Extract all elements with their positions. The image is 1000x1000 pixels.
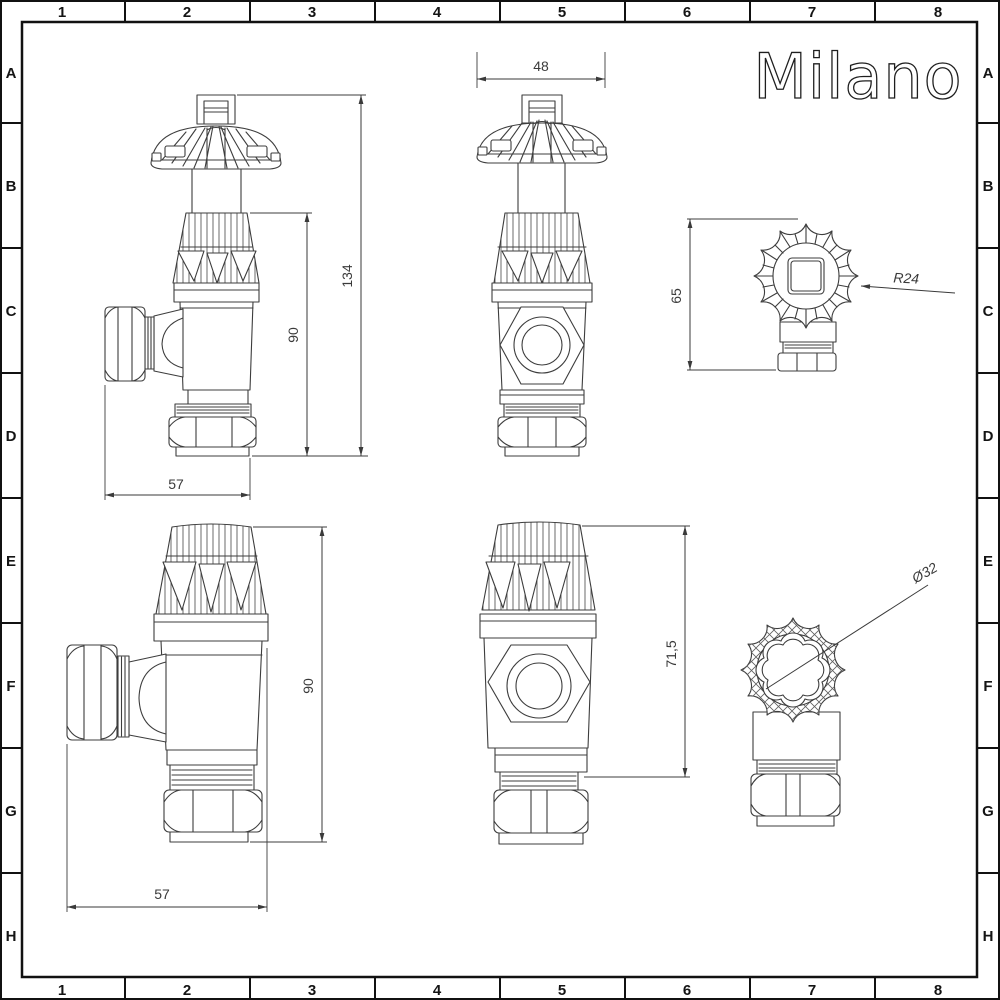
grid-col-label: 5 bbox=[558, 982, 566, 999]
bottom-column-dividers bbox=[125, 978, 875, 999]
lockshield-valve-front-view: 71,5 bbox=[480, 522, 690, 844]
left-row-labels: A B C D E F G H bbox=[5, 65, 17, 945]
grid-col-label: 5 bbox=[558, 4, 566, 21]
grid-row-label: F bbox=[983, 678, 992, 695]
grid-col-label: 8 bbox=[934, 4, 942, 21]
grid-row-label: E bbox=[983, 553, 993, 570]
drawing-sheet: 1 2 3 4 5 6 7 8 1 2 3 4 5 6 7 8 A B C D … bbox=[0, 0, 1000, 1000]
grid-col-label: 8 bbox=[934, 982, 942, 999]
angle-valve-top-linework bbox=[754, 224, 858, 371]
grid-col-label: 2 bbox=[183, 4, 191, 21]
angle-valve-front-linework bbox=[477, 95, 607, 456]
right-row-labels: A B C D E F G H bbox=[982, 65, 994, 945]
dim-body-height-label: 90 bbox=[285, 327, 301, 343]
grid-col-label: 7 bbox=[808, 982, 816, 999]
dim-handwheel-radius-label: R24 bbox=[893, 269, 920, 286]
grid-col-label: 3 bbox=[308, 982, 316, 999]
grid-row-label: D bbox=[983, 428, 994, 445]
left-row-dividers bbox=[1, 123, 22, 873]
milano-logo: Milano bbox=[753, 40, 962, 113]
lockshield-valve-side-linework bbox=[67, 524, 268, 842]
top-column-dividers bbox=[125, 1, 875, 22]
grid-row-label: C bbox=[983, 303, 994, 320]
grid-row-label: G bbox=[5, 803, 17, 820]
grid-row-label: B bbox=[6, 178, 17, 195]
lockshield-valve-side-view: 90 57 bbox=[67, 524, 327, 912]
grid-col-label: 3 bbox=[308, 4, 316, 21]
grid-col-label: 6 bbox=[683, 4, 691, 21]
grid-col-label: 7 bbox=[808, 4, 816, 21]
angle-valve-top-view: 65 R24 bbox=[668, 219, 955, 371]
dim-assembly-height-label: 65 bbox=[668, 288, 684, 304]
grid-row-label: C bbox=[6, 303, 17, 320]
grid-col-label: 1 bbox=[58, 982, 66, 999]
lockshield-valve-top-view: Ø32 bbox=[741, 559, 940, 826]
dim-height-label: 90 bbox=[300, 678, 316, 694]
grid-row-label: D bbox=[6, 428, 17, 445]
grid-col-label: 4 bbox=[433, 982, 442, 999]
technical-drawing-svg: 1 2 3 4 5 6 7 8 1 2 3 4 5 6 7 8 A B C D … bbox=[0, 0, 1000, 1000]
grid-row-label: A bbox=[6, 65, 17, 82]
right-row-dividers bbox=[977, 123, 999, 873]
dim-width-label: 57 bbox=[154, 886, 170, 902]
dim-width-label: 57 bbox=[168, 476, 184, 492]
angle-valve-side-linework bbox=[105, 95, 281, 456]
grid-row-label: E bbox=[6, 553, 16, 570]
grid-col-label: 2 bbox=[183, 982, 191, 999]
dim-height-label: 71,5 bbox=[663, 640, 679, 667]
lockshield-valve-front-linework bbox=[480, 522, 596, 844]
lockshield-valve-top-linework bbox=[741, 618, 845, 826]
grid-row-label: H bbox=[983, 928, 994, 945]
dim-cap-diameter-label: Ø32 bbox=[908, 559, 940, 587]
grid-row-label: H bbox=[6, 928, 17, 945]
grid-row-label: A bbox=[983, 65, 994, 82]
angle-valve-front-view: 48 bbox=[477, 52, 607, 456]
grid-col-label: 1 bbox=[58, 4, 66, 21]
grid-row-label: B bbox=[983, 178, 994, 195]
grid-col-label: 4 bbox=[433, 4, 442, 21]
grid-col-label: 6 bbox=[683, 982, 691, 999]
grid-row-label: F bbox=[6, 678, 15, 695]
dim-total-height-label: 134 bbox=[339, 264, 355, 288]
angle-valve-side-view: 134 90 57 bbox=[105, 95, 368, 500]
dim-handwheel-width-label: 48 bbox=[533, 58, 549, 74]
grid-row-label: G bbox=[982, 803, 994, 820]
radius-leader-line bbox=[861, 286, 955, 293]
